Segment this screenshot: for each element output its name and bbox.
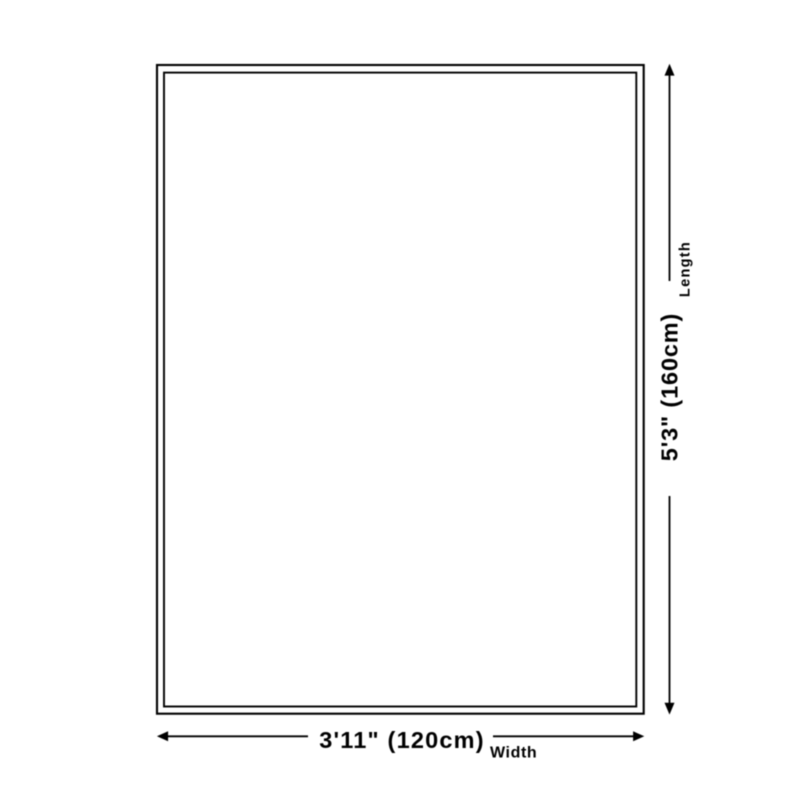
svg-text:3'11" (120cm): 3'11" (120cm) <box>319 727 485 753</box>
svg-text:5'3" (160cm): 5'3" (160cm) <box>657 313 683 461</box>
svg-text:Width: Width <box>490 745 537 762</box>
svg-text:Length: Length <box>677 241 693 297</box>
